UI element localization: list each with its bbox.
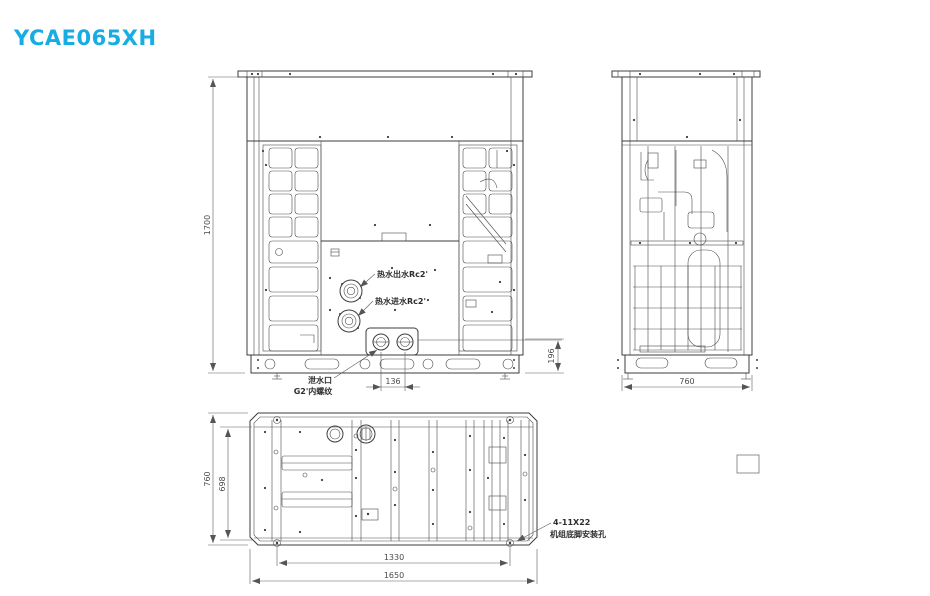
dim-plan-depth: 760	[203, 471, 212, 486]
technical-drawing: 1700 196 136 760 760	[0, 0, 930, 596]
front-view	[238, 71, 562, 379]
plan-outline	[250, 413, 537, 545]
label-mounting-holes-line1: 4-11X22	[553, 518, 590, 527]
plan-view	[250, 413, 759, 547]
plan-slot-2	[282, 492, 352, 507]
hot-water-outlet-fitting	[340, 280, 362, 302]
dim-front-height: 1700	[203, 215, 212, 235]
dim-side-width: 760	[679, 377, 694, 386]
front-vent-slot	[382, 233, 406, 241]
label-mounting-holes-line2: 机组底脚安装孔	[550, 529, 606, 539]
side-body-outline	[622, 77, 752, 355]
dim-base-height: 196	[547, 348, 556, 363]
hot-water-inlet-fitting	[338, 310, 360, 332]
front-base-rail	[251, 355, 519, 373]
side-coil-grid	[633, 266, 742, 352]
plan-opening-2	[357, 425, 375, 443]
plan-mounting-holes	[274, 417, 514, 547]
plan-opening-1	[327, 426, 343, 442]
plan-junction-box	[362, 509, 378, 520]
drain-panel	[366, 328, 418, 355]
dim-plan-length: 1650	[384, 571, 404, 580]
dimensions: 1700 196 136 760 760	[203, 77, 752, 584]
dim-plan-inner-depth: 698	[218, 476, 227, 491]
label-drain-port-line1: 泄水口	[308, 375, 332, 385]
front-right-grille	[459, 145, 517, 351]
label-hot-water-outlet: 热水出水Rc2'	[377, 269, 428, 279]
callout-labels: 热水出水Rc2' 热水进水Rc2' 泄水口 G2'内螺纹 4-11X22 机组底…	[294, 269, 606, 541]
front-top-rail	[238, 71, 532, 77]
plan-rivets	[264, 431, 527, 533]
side-view	[612, 71, 760, 379]
drawing-sheet: YCAE065XH	[0, 0, 930, 596]
dim-plan-hole-span: 1330	[384, 553, 404, 562]
front-left-grille	[263, 145, 321, 351]
label-drain-port-line2: G2'内螺纹	[294, 386, 334, 396]
side-base-rail	[617, 355, 758, 373]
front-body-outline	[247, 77, 523, 355]
dim-drain-spacing: 136	[385, 377, 400, 386]
side-top-rail	[612, 71, 760, 77]
plan-rails	[272, 420, 529, 541]
label-hot-water-inlet: 热水进水Rc2'	[375, 296, 426, 306]
